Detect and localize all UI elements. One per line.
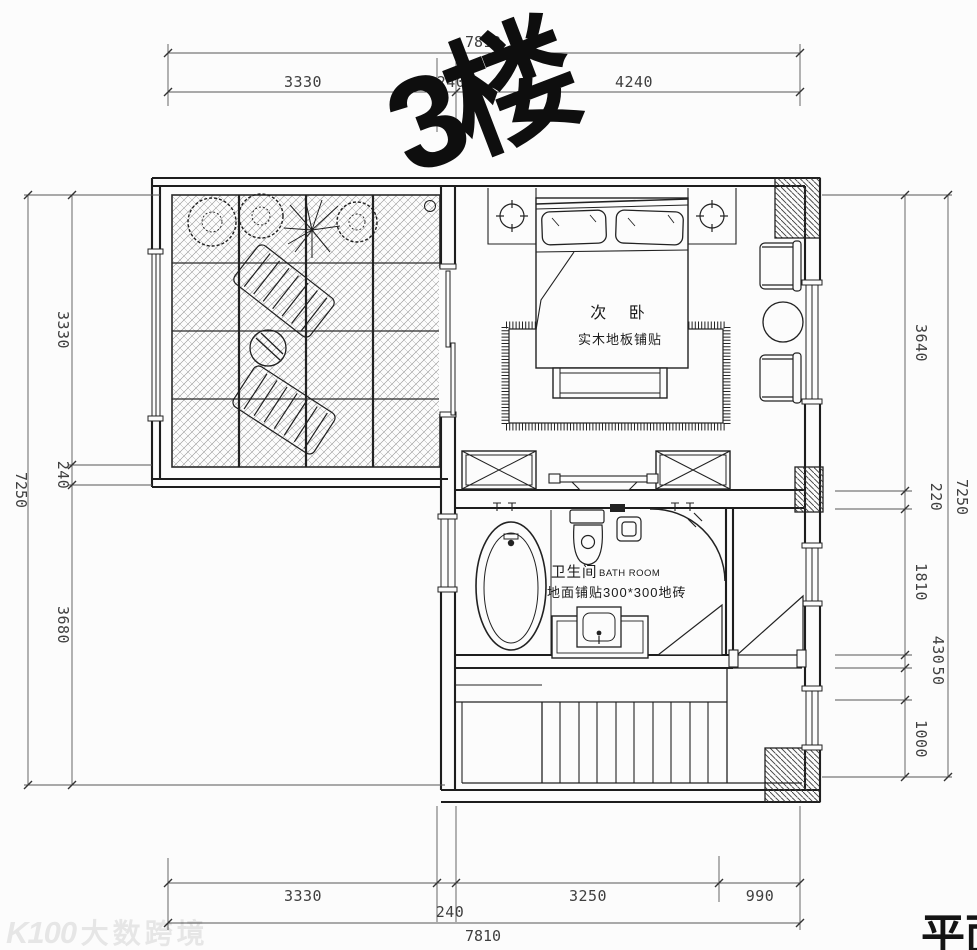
armchair [760, 241, 801, 291]
shower-door-swing [658, 605, 722, 655]
sliding-door [439, 264, 457, 417]
sheet-title-partial: 平面 [921, 899, 977, 950]
dim-left-seg1: 3330 [54, 311, 72, 349]
bathroom-label: 卫生间 [551, 564, 598, 581]
dim-right-overall: 7250 [953, 479, 971, 515]
bedroom-floor-note: 实木地板铺贴 [578, 332, 662, 347]
dim-left-seg2: 240 [54, 461, 72, 490]
bed-bench [553, 368, 667, 398]
dim-right-seg5: 50 [929, 666, 947, 685]
door-jamb [797, 650, 806, 667]
stairs [455, 668, 802, 783]
watermark-logo: K100 [6, 915, 76, 950]
door-jamb [729, 650, 738, 667]
toilet [570, 510, 604, 565]
wardrobe-cabinet [462, 451, 536, 489]
bedroom-label: 次 卧 [590, 304, 653, 322]
wall-column [795, 467, 823, 512]
dim-right-seg2: 220 [927, 483, 945, 512]
dim-left-seg3: 3680 [54, 606, 72, 644]
dim-right-seg3: 1810 [912, 563, 930, 601]
watermark-text: 大数跨境 [81, 918, 209, 949]
dim-bottom-seg1: 3330 [284, 887, 322, 905]
shower-enclosure [650, 509, 725, 581]
dim-left-overall: 7250 [12, 472, 30, 508]
shower-control [617, 517, 641, 541]
tea-table [763, 302, 803, 342]
wardrobe-cabinet [656, 451, 730, 489]
dim-top-seg3: 4240 [615, 73, 653, 91]
window [802, 543, 822, 606]
dimension-right: 3640 220 1810 430 50 1000 7250 [822, 191, 971, 781]
bathroom-floor-note: 地面铺贴300*300地砖 [547, 585, 686, 600]
window [438, 514, 457, 592]
dim-top-seg1: 3330 [284, 73, 322, 91]
wall-column [765, 748, 820, 802]
bedroom: 次 卧 实木地板铺贴 [462, 188, 803, 490]
dim-bottom-seg2: 240 [436, 903, 465, 921]
dim-right-seg1: 3640 [912, 324, 930, 362]
drain-box-icon [610, 504, 625, 512]
window [148, 249, 163, 421]
armchair [760, 353, 801, 403]
wall-column [775, 178, 820, 238]
dim-ticks [24, 191, 76, 789]
dim-right-seg4: 430 [929, 636, 947, 665]
bathtub [476, 522, 546, 650]
bathroom-label-en: BATH ROOM [599, 568, 660, 579]
dim-right-seg6: 1000 [912, 720, 930, 758]
dim-ticks [164, 879, 804, 927]
dimension-bottom: 3330 240 3250 990 7810 [164, 806, 804, 945]
floor-plan-sheet: 次 卧 实木地板铺贴 [0, 0, 977, 950]
door-swing [737, 596, 803, 655]
window [802, 686, 822, 750]
watermark: K100 大数跨境 [6, 912, 209, 950]
tub-faucet-icon [508, 540, 514, 546]
dim-bottom-overall: 7810 [465, 927, 501, 945]
dim-bottom-seg4: 990 [746, 887, 775, 905]
terrace [172, 194, 440, 467]
ceiling-light-icon [696, 200, 728, 232]
window [802, 280, 822, 404]
ceiling-light-icon [496, 200, 528, 232]
stair-treads [560, 702, 708, 783]
dim-bottom-seg3: 3250 [569, 887, 607, 905]
vanity [552, 607, 648, 658]
tv-console [549, 474, 658, 490]
